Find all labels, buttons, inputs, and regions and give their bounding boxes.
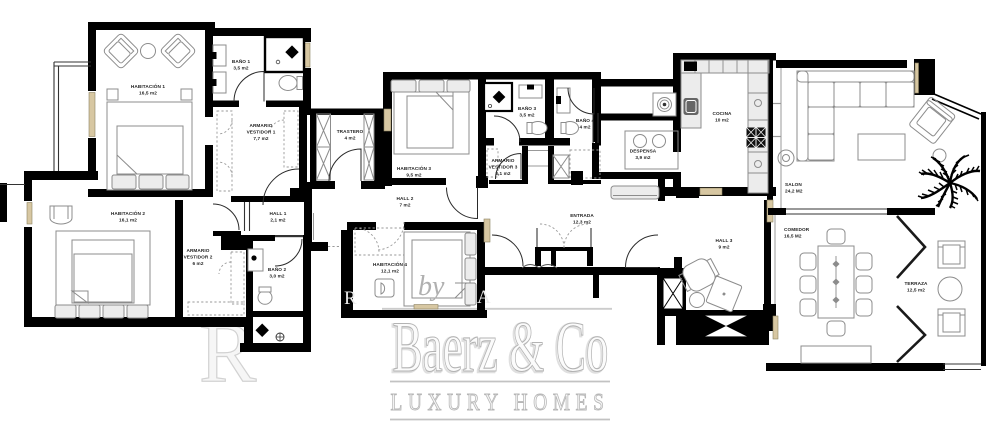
svg-text:4 m2: 4 m2: [579, 125, 590, 130]
svg-text:ARMARIO: ARMARIO: [491, 158, 514, 163]
svg-text:7 m2: 7 m2: [399, 203, 410, 208]
svg-text:HABITACIÓN 4: HABITACIÓN 4: [373, 260, 407, 267]
svg-text:3,5 m2: 3,5 m2: [233, 66, 248, 71]
svg-text:ENTRADA: ENTRADA: [570, 213, 594, 218]
svg-text:HABITACIÓN 2: HABITACIÓN 2: [111, 209, 145, 216]
svg-text:BAÑO 1: BAÑO 1: [232, 58, 251, 64]
svg-text:16,1 m2: 16,1 m2: [119, 218, 137, 223]
svg-text:2,1 m2: 2,1 m2: [495, 171, 510, 176]
svg-text:BAÑO 4: BAÑO 4: [576, 117, 595, 123]
svg-text:COMEDOR: COMEDOR: [784, 227, 810, 232]
svg-text:DESPENSA: DESPENSA: [630, 149, 657, 154]
svg-text:6 m2: 6 m2: [192, 261, 203, 266]
svg-text:HABITACIÓN 3: HABITACIÓN 3: [397, 164, 431, 171]
svg-text:7,7 m2: 7,7 m2: [253, 136, 268, 141]
svg-text:COCINA: COCINA: [712, 111, 732, 116]
svg-text:12,3 m2: 12,3 m2: [573, 220, 591, 225]
svg-text:16,5 M2: 16,5 M2: [784, 234, 802, 239]
svg-text:by: by: [418, 271, 445, 302]
svg-text:VESTIDOR 1: VESTIDOR 1: [247, 130, 276, 135]
svg-text:TRASTERO: TRASTERO: [337, 129, 364, 134]
svg-text:12,1 m2: 12,1 m2: [381, 269, 399, 274]
svg-text:4 m2: 4 m2: [344, 136, 355, 141]
svg-text:VESTIDOR 3: VESTIDOR 3: [489, 165, 518, 170]
svg-text:BAÑO 2: BAÑO 2: [268, 266, 287, 272]
svg-text:SALON: SALON: [785, 182, 802, 187]
svg-text:3,0 m2: 3,0 m2: [269, 274, 284, 279]
svg-text:9 m2: 9 m2: [718, 245, 729, 250]
svg-text:ARMARIO: ARMARIO: [249, 123, 272, 128]
svg-text:3,5 m2: 3,5 m2: [519, 113, 534, 118]
svg-text:TERRAZA: TERRAZA: [904, 281, 928, 286]
svg-text:12,5 m2: 12,5 m2: [907, 288, 925, 293]
svg-text:VESTIDOR 2: VESTIDOR 2: [184, 255, 213, 260]
svg-text:24,2 M2: 24,2 M2: [785, 189, 803, 194]
svg-text:R: R: [344, 288, 357, 309]
svg-text:A: A: [477, 287, 491, 308]
svg-text:HABITACIÓN 1: HABITACIÓN 1: [131, 82, 165, 89]
svg-text:ARMARIO: ARMARIO: [186, 248, 209, 253]
svg-text:3,9 m2: 3,9 m2: [635, 155, 650, 160]
svg-text:BAÑO 3: BAÑO 3: [518, 105, 537, 111]
svg-text:Baerz & Co: Baerz & Co: [393, 307, 609, 387]
svg-text:16,5 m2: 16,5 m2: [139, 91, 157, 96]
svg-text:HALL 1: HALL 1: [270, 211, 287, 216]
svg-text:9,5 m2: 9,5 m2: [406, 173, 421, 178]
svg-text:LUXURY HOMES: LUXURY HOMES: [391, 390, 610, 416]
svg-text:HALL 3: HALL 3: [716, 238, 733, 243]
svg-text:2,1 m2: 2,1 m2: [270, 218, 285, 223]
svg-text:10 m2: 10 m2: [715, 118, 729, 123]
svg-text:HALL 2: HALL 2: [397, 196, 414, 201]
